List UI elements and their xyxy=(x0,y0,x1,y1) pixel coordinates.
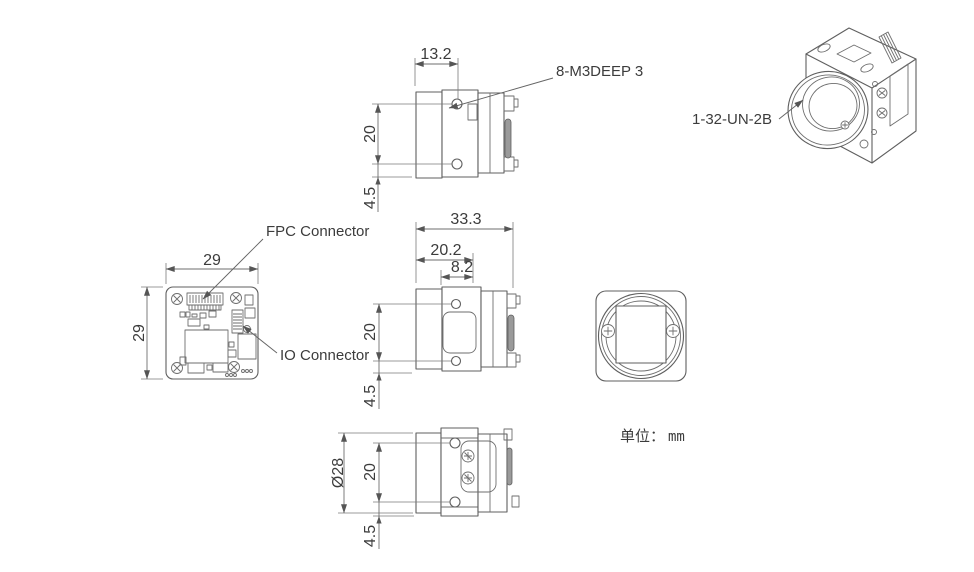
mount-thread-label: 1-32-UN-2B xyxy=(692,111,772,128)
dim-label-29-h: 29 xyxy=(131,324,148,342)
dim-label-diameter: Ø28 xyxy=(330,458,347,488)
lens-barrel xyxy=(416,289,442,369)
camera-body-outline xyxy=(416,287,520,371)
technical-drawing: 13.2 20 4.5 8-M3DEEP 3 xyxy=(0,0,974,572)
dim-label-4-5: 4.5 xyxy=(362,525,379,547)
unit-note-value: mm xyxy=(668,429,685,445)
dim-label-20: 20 xyxy=(362,125,379,143)
view-top-side: 13.2 20 4.5 8-M3DEEP 3 xyxy=(362,46,643,212)
dim-label-4-5: 4.5 xyxy=(362,187,379,209)
rear-block xyxy=(481,291,507,367)
dim-label-33-3: 33.3 xyxy=(450,211,481,228)
dim-label-20: 20 xyxy=(362,323,379,341)
connector-strip xyxy=(505,119,511,158)
connector-strip xyxy=(508,315,514,351)
callout-io: IO Connector xyxy=(243,326,369,364)
connector-strip xyxy=(507,448,512,485)
drawing-canvas: 13.2 20 4.5 8-M3DEEP 3 xyxy=(0,0,974,572)
dim-label-20: 20 xyxy=(362,463,379,481)
lens-barrel xyxy=(416,92,442,178)
rear-block xyxy=(478,93,504,173)
dim-label-20-2: 20.2 xyxy=(430,242,461,259)
fpc-label: FPC Connector xyxy=(266,223,369,240)
dim-label-13-2: 13.2 xyxy=(420,46,451,63)
view-front xyxy=(596,291,686,381)
unit-note: 单位： mm xyxy=(620,428,685,445)
view-bottom: Ø28 20 4.5 xyxy=(330,428,519,549)
rear-block xyxy=(478,434,507,512)
dim-label-29-w: 29 xyxy=(203,252,221,269)
camera-body-outline xyxy=(416,428,519,516)
io-label: IO Connector xyxy=(280,347,369,364)
dim-label-8-2: 8.2 xyxy=(451,259,473,276)
dim-label-4-5: 4.5 xyxy=(362,385,379,407)
unit-note-label: 单位： xyxy=(620,428,665,445)
view-pcb-back: 29 29 FPC Connector IO Connector xyxy=(131,223,369,379)
thread-callout-label: 8-M3DEEP 3 xyxy=(556,63,643,80)
lens-barrel xyxy=(416,433,441,513)
sensor-window xyxy=(616,306,666,363)
front-block xyxy=(442,287,481,371)
callout-lens-mount: 1-32-UN-2B xyxy=(692,100,803,128)
view-perspective: 1-32-UN-2B xyxy=(692,28,916,163)
view-side-section: 33.3 20.2 8.2 20 4.5 xyxy=(362,211,520,409)
